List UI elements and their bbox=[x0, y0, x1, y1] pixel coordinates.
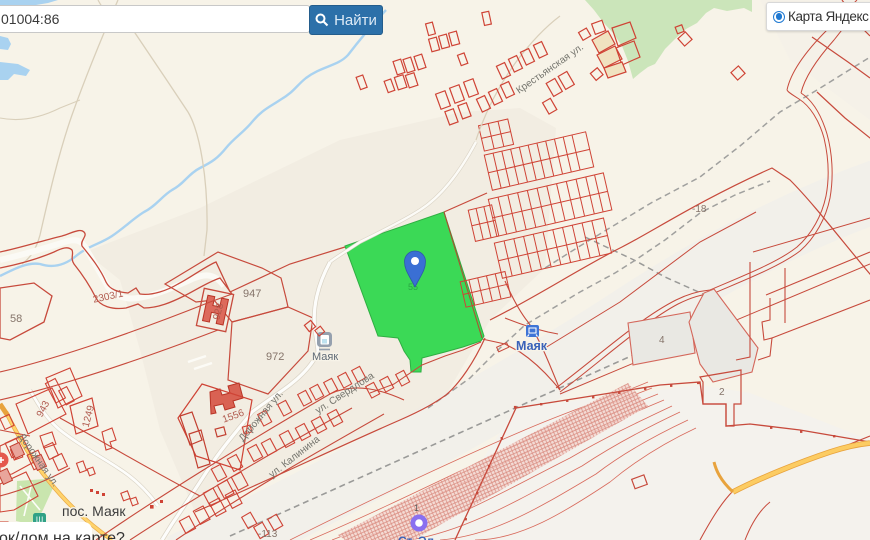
svg-text:2: 2 bbox=[719, 387, 725, 398]
svg-text:1: 1 bbox=[414, 503, 419, 513]
svg-text:-18: -18 bbox=[692, 204, 707, 215]
svg-text:947: 947 bbox=[243, 288, 261, 300]
svg-text:Ст. Эл: Ст. Эл bbox=[398, 534, 434, 540]
svg-text:4: 4 bbox=[659, 335, 665, 346]
svg-text:972: 972 bbox=[266, 351, 284, 363]
svg-text:пос. Маяк: пос. Маяк bbox=[62, 503, 126, 519]
svg-text:Маяк: Маяк bbox=[312, 351, 338, 363]
svg-text:58: 58 bbox=[10, 313, 22, 325]
svg-text:-113: -113 bbox=[258, 529, 278, 540]
svg-text:Маяк: Маяк bbox=[516, 339, 548, 353]
